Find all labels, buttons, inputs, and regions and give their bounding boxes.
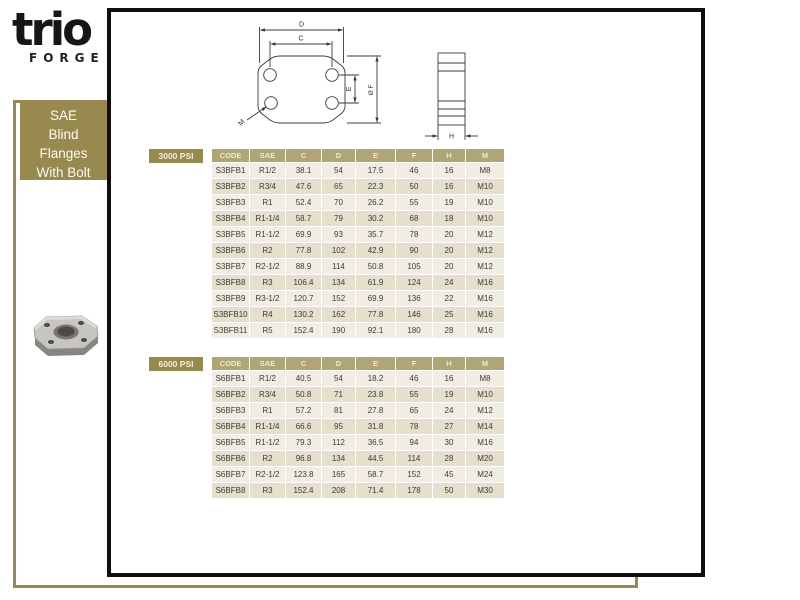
table-cell: 18.2	[356, 371, 395, 386]
table-cell: 20	[433, 227, 465, 242]
flange-product-photo	[26, 306, 106, 366]
table-row: S6BFB7R2-1/2123.816558.715245M24	[212, 467, 504, 482]
dim-label-e: E	[346, 86, 353, 91]
table-cell: 112	[322, 435, 355, 450]
table-cell: 65	[322, 179, 355, 194]
table-cell: M12	[466, 243, 504, 258]
logo-text: trio	[12, 6, 105, 54]
table-cell: 22.3	[356, 179, 395, 194]
table-row: S3BFB11R5152.419092.118028M16	[212, 323, 504, 338]
table-cell: 69.9	[286, 227, 321, 242]
table-cell: M8	[466, 163, 504, 178]
table-cell: 16	[433, 179, 465, 194]
table-cell: M12	[466, 403, 504, 418]
table-cell: 55	[396, 387, 432, 402]
column-header: C	[286, 149, 321, 162]
column-header: M	[466, 357, 504, 370]
table-row: S3BFB5R1-1/269.99335.77820M12	[212, 227, 504, 242]
table-row: S3BFB2R3/447.66522.35016M10	[212, 179, 504, 194]
table-cell: S3BFB10	[212, 307, 249, 322]
table-row: S3BFB4R1-1/458.77930.26818M10	[212, 211, 504, 226]
table-cell: M16	[466, 275, 504, 290]
table-cell: 208	[322, 483, 355, 498]
table-row: S3BFB7R2-1/288.911450.810520M12	[212, 259, 504, 274]
spec-table-6000psi: CODESAECDEFHMS6BFB1R1/240.55418.24616M8S…	[212, 357, 504, 498]
column-header: D	[322, 357, 355, 370]
table-cell: M12	[466, 227, 504, 242]
table-cell: 79.3	[286, 435, 321, 450]
table-cell: M8	[466, 371, 504, 386]
table-cell: R3/4	[250, 179, 285, 194]
table-cell: 17.5	[356, 163, 395, 178]
table-cell: 58.7	[356, 467, 395, 482]
column-header: E	[356, 149, 395, 162]
table-row: S6BFB1R1/240.55418.24616M8	[212, 371, 504, 386]
table-cell: 24	[433, 403, 465, 418]
table-cell: 77.8	[286, 243, 321, 258]
table-row: S3BFB3R152.47026.25519M10	[212, 195, 504, 210]
table-cell: 114	[396, 451, 432, 466]
table-cell: M16	[466, 435, 504, 450]
table-cell: 81	[322, 403, 355, 418]
title-line: Flanges	[20, 144, 107, 163]
table-cell: 92.1	[356, 323, 395, 338]
table-cell: 38.1	[286, 163, 321, 178]
table-cell: 134	[322, 451, 355, 466]
table-cell: R3-1/2	[250, 291, 285, 306]
dim-label-d: D	[299, 22, 304, 29]
title-line: SAE	[20, 106, 107, 125]
table-cell: R1/2	[250, 371, 285, 386]
table-cell: 28	[433, 451, 465, 466]
table-header-row: CODESAECDEFHM	[212, 149, 504, 162]
column-header: H	[433, 149, 465, 162]
table-cell: R1-1/2	[250, 435, 285, 450]
table-cell: 24	[433, 275, 465, 290]
table-row: S3BFB1R1/238.15417.54616M8	[212, 163, 504, 178]
table-cell: S3BFB8	[212, 275, 249, 290]
table-row: S6BFB3R157.28127.86524M12	[212, 403, 504, 418]
column-header: F	[396, 357, 432, 370]
table-cell: 78	[396, 419, 432, 434]
pressure-label-6000psi: 6000 PSI	[149, 357, 203, 371]
table-cell: S6BFB4	[212, 419, 249, 434]
table-cell: S3BFB3	[212, 195, 249, 210]
table-cell: 50.8	[286, 387, 321, 402]
table-row: S3BFB8R3106.413461.912424M16	[212, 275, 504, 290]
table-cell: S6BFB2	[212, 387, 249, 402]
table-cell: 61.9	[356, 275, 395, 290]
brand-logo: trio FORGE	[12, 6, 105, 65]
table-cell: 114	[322, 259, 355, 274]
table-cell: 35.7	[356, 227, 395, 242]
column-header: CODE	[212, 357, 249, 370]
table-cell: 102	[322, 243, 355, 258]
table-cell: M16	[466, 323, 504, 338]
table-cell: M10	[466, 195, 504, 210]
table-cell: 88.9	[286, 259, 321, 274]
table-cell: 57.2	[286, 403, 321, 418]
table-cell: 27.8	[356, 403, 395, 418]
catalog-page: trio FORGE SAE Blind Flanges With Bolt	[0, 0, 800, 600]
table-cell: 66.6	[286, 419, 321, 434]
table-cell: 124	[396, 275, 432, 290]
bolt-hole	[264, 69, 277, 82]
dim-label-m: M	[237, 118, 246, 127]
table-row: S6BFB6R296.813444.511428M20	[212, 451, 504, 466]
table-cell: 16	[433, 371, 465, 386]
table-cell: R3	[250, 483, 285, 498]
table-cell: S3BFB4	[212, 211, 249, 226]
table-cell: 26.2	[356, 195, 395, 210]
dim-label-c: C	[298, 36, 303, 43]
table-cell: M10	[466, 387, 504, 402]
table-cell: R3/4	[250, 387, 285, 402]
table-cell: 16	[433, 163, 465, 178]
table-cell: 47.6	[286, 179, 321, 194]
table-cell: 180	[396, 323, 432, 338]
table-cell: 152.4	[286, 483, 321, 498]
table-row: S6BFB2R3/450.87123.85519M10	[212, 387, 504, 402]
table-cell: R2	[250, 243, 285, 258]
table-cell: 46	[396, 371, 432, 386]
table-cell: 23.8	[356, 387, 395, 402]
table-cell: S3BFB2	[212, 179, 249, 194]
column-header: D	[322, 149, 355, 162]
column-header: H	[433, 357, 465, 370]
table-cell: 79	[322, 211, 355, 226]
column-header: SAE	[250, 357, 285, 370]
flange-technical-drawing: D C E Ø F M	[230, 12, 480, 152]
table-cell: 68	[396, 211, 432, 226]
table-row: S3BFB9R3-1/2120.715269.913622M16	[212, 291, 504, 306]
spec-table-3000psi: CODESAECDEFHMS3BFB1R1/238.15417.54616M8S…	[212, 149, 504, 338]
table-cell: S6BFB1	[212, 371, 249, 386]
table-cell: M12	[466, 259, 504, 274]
table-cell: 120.7	[286, 291, 321, 306]
table-cell: M20	[466, 451, 504, 466]
table-cell: R1-1/2	[250, 227, 285, 242]
dim-label-h: H	[449, 134, 454, 141]
table-cell: 96.8	[286, 451, 321, 466]
column-header: M	[466, 149, 504, 162]
table-cell: 22	[433, 291, 465, 306]
table-cell: 65	[396, 403, 432, 418]
bolt-hole	[326, 69, 339, 82]
table-cell: R1/2	[250, 163, 285, 178]
table-cell: 45	[433, 467, 465, 482]
table-cell: 94	[396, 435, 432, 450]
table-cell: R2	[250, 451, 285, 466]
table-cell: S6BFB8	[212, 483, 249, 498]
table-cell: S3BFB1	[212, 163, 249, 178]
table-cell: 40.5	[286, 371, 321, 386]
table-cell: R1	[250, 403, 285, 418]
table-cell: 77.8	[356, 307, 395, 322]
table-cell: R1-1/4	[250, 419, 285, 434]
table-cell: S6BFB7	[212, 467, 249, 482]
table-cell: 50.8	[356, 259, 395, 274]
sidebar-product-title: SAE Blind Flanges With Bolt	[20, 103, 107, 180]
title-line: Blind	[20, 125, 107, 144]
table-cell: 54	[322, 163, 355, 178]
table-cell: S3BFB9	[212, 291, 249, 306]
table-cell: 136	[396, 291, 432, 306]
table-row: S6BFB5R1-1/279.311236.59430M16	[212, 435, 504, 450]
title-line: With Bolt	[20, 163, 107, 182]
table-cell: M14	[466, 419, 504, 434]
table-cell: M16	[466, 291, 504, 306]
table-cell: 50	[433, 483, 465, 498]
table-cell: M10	[466, 179, 504, 194]
table-cell: 25	[433, 307, 465, 322]
table-cell: 106.4	[286, 275, 321, 290]
table-cell: 71.4	[356, 483, 395, 498]
table-cell: 78	[396, 227, 432, 242]
column-header: E	[356, 357, 395, 370]
table-cell: S3BFB6	[212, 243, 249, 258]
table-cell: 36.5	[356, 435, 395, 450]
table-cell: 71	[322, 387, 355, 402]
table-cell: 44.5	[356, 451, 395, 466]
table-cell: 55	[396, 195, 432, 210]
table-cell: 134	[322, 275, 355, 290]
table-row: S6BFB4R1-1/466.69531.87827M14	[212, 419, 504, 434]
table-cell: 20	[433, 259, 465, 274]
table-cell: R3	[250, 275, 285, 290]
table-row: S3BFB6R277.810242.99020M12	[212, 243, 504, 258]
bolt-hole	[265, 97, 278, 110]
table-cell: 130.2	[286, 307, 321, 322]
table-cell: 178	[396, 483, 432, 498]
table-cell: 69.9	[356, 291, 395, 306]
table-cell: S3BFB5	[212, 227, 249, 242]
table-cell: R5	[250, 323, 285, 338]
table-cell: M16	[466, 307, 504, 322]
table-cell: 152	[322, 291, 355, 306]
column-header: SAE	[250, 149, 285, 162]
table-cell: 31.8	[356, 419, 395, 434]
table-cell: 27	[433, 419, 465, 434]
table-cell: 18	[433, 211, 465, 226]
table-cell: R1-1/4	[250, 211, 285, 226]
table-cell: 20	[433, 243, 465, 258]
table-cell: S6BFB3	[212, 403, 249, 418]
table-cell: 19	[433, 195, 465, 210]
table-cell: 105	[396, 259, 432, 274]
table-cell: R2-1/2	[250, 259, 285, 274]
table-cell: 70	[322, 195, 355, 210]
table-cell: 54	[322, 371, 355, 386]
table-cell: 30	[433, 435, 465, 450]
table-cell: 93	[322, 227, 355, 242]
table-cell: 30.2	[356, 211, 395, 226]
table-cell: S3BFB11	[212, 323, 249, 338]
table-cell: S3BFB7	[212, 259, 249, 274]
table-cell: 28	[433, 323, 465, 338]
table-cell: 90	[396, 243, 432, 258]
table-cell: 165	[322, 467, 355, 482]
table-cell: S6BFB5	[212, 435, 249, 450]
table-cell: R2-1/2	[250, 467, 285, 482]
table-cell: 42.9	[356, 243, 395, 258]
table-cell: S6BFB6	[212, 451, 249, 466]
bolt-hole	[326, 97, 339, 110]
table-cell: R4	[250, 307, 285, 322]
pressure-label-3000psi: 3000 PSI	[149, 149, 203, 163]
table-header-row: CODESAECDEFHM	[212, 357, 504, 370]
table-cell: R1	[250, 195, 285, 210]
table-cell: M10	[466, 211, 504, 226]
table-row: S6BFB8R3152.420871.417850M30	[212, 483, 504, 498]
table-cell: 190	[322, 323, 355, 338]
side-view-outline	[438, 53, 465, 125]
table-row: S3BFB10R4130.216277.814625M16	[212, 307, 504, 322]
table-cell: 152	[396, 467, 432, 482]
column-header: F	[396, 149, 432, 162]
column-header: C	[286, 357, 321, 370]
table-cell: 50	[396, 179, 432, 194]
table-cell: 46	[396, 163, 432, 178]
table-cell: 152.4	[286, 323, 321, 338]
dim-label-f: Ø F	[368, 85, 375, 96]
table-cell: 95	[322, 419, 355, 434]
table-cell: M24	[466, 467, 504, 482]
table-cell: 52.4	[286, 195, 321, 210]
table-cell: M30	[466, 483, 504, 498]
table-cell: 19	[433, 387, 465, 402]
table-cell: 146	[396, 307, 432, 322]
column-header: CODE	[212, 149, 249, 162]
table-cell: 58.7	[286, 211, 321, 226]
table-cell: 123.8	[286, 467, 321, 482]
table-cell: 162	[322, 307, 355, 322]
